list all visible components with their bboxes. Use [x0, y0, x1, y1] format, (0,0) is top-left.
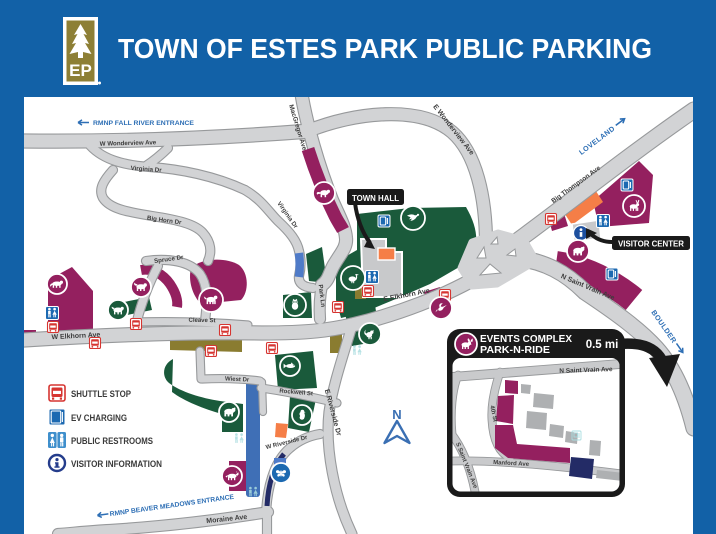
svg-text:VISITOR CENTER: VISITOR CENTER: [618, 240, 684, 249]
svg-text:PUBLIC RESTROOMS: PUBLIC RESTROOMS: [71, 436, 153, 447]
svg-text:PARK-N-RIDE: PARK-N-RIDE: [480, 345, 550, 356]
svg-text:W Wonderview Ave: W Wonderview Ave: [100, 139, 157, 147]
svg-text:VISITOR INFORMATION: VISITOR INFORMATION: [71, 459, 162, 470]
svg-text:Cleave St: Cleave St: [188, 318, 215, 324]
svg-text:EP: EP: [69, 61, 92, 80]
svg-text:SHUTTLE STOP: SHUTTLE STOP: [71, 389, 132, 400]
svg-text:N: N: [392, 407, 401, 422]
svg-text:EVENTS COMPLEX: EVENTS COMPLEX: [480, 334, 572, 345]
svg-text:TOWN HALL: TOWN HALL: [352, 193, 399, 203]
svg-text:RMNP FALL RIVER ENTRANCE: RMNP FALL RIVER ENTRANCE: [93, 120, 194, 127]
svg-text:EV CHARGING: EV CHARGING: [71, 413, 127, 424]
svg-text:TOWN OF ESTES PARK PUBLIC PARK: TOWN OF ESTES PARK PUBLIC PARKING: [118, 33, 652, 64]
svg-text:0.5 mi: 0.5 mi: [586, 339, 619, 351]
